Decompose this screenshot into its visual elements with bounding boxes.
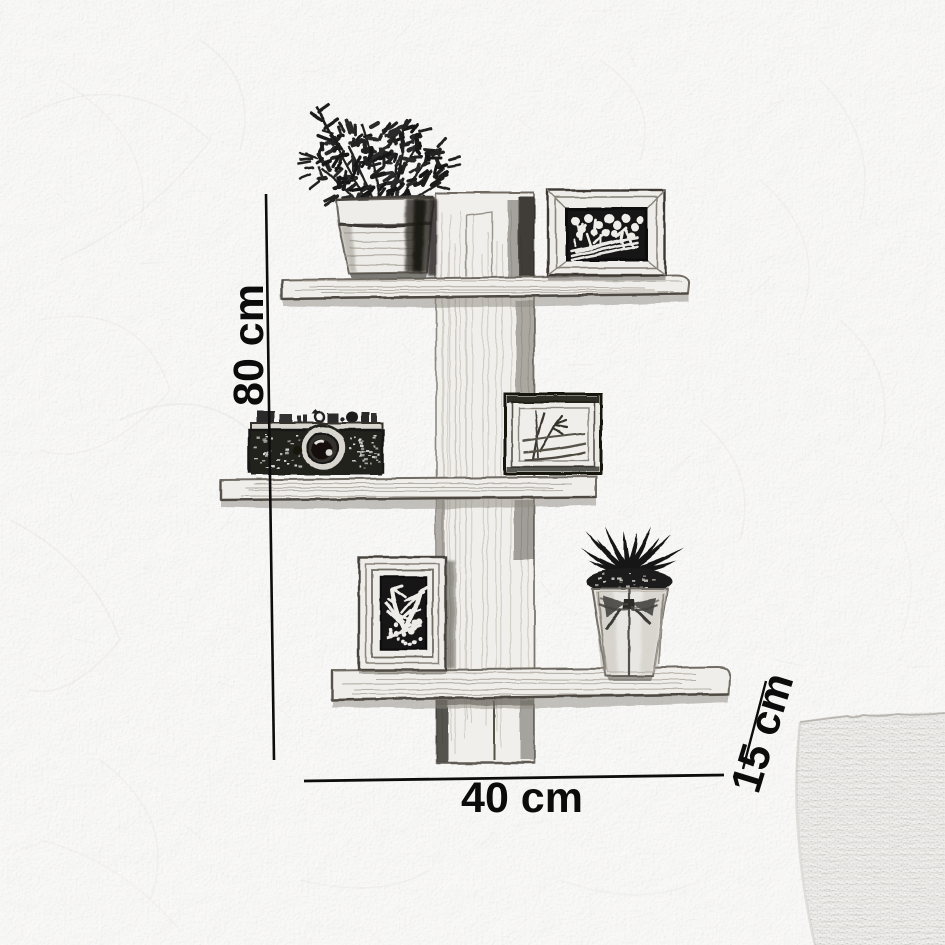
- svg-text:80 cm: 80 cm: [225, 284, 273, 406]
- svg-text:40 cm: 40 cm: [461, 774, 583, 822]
